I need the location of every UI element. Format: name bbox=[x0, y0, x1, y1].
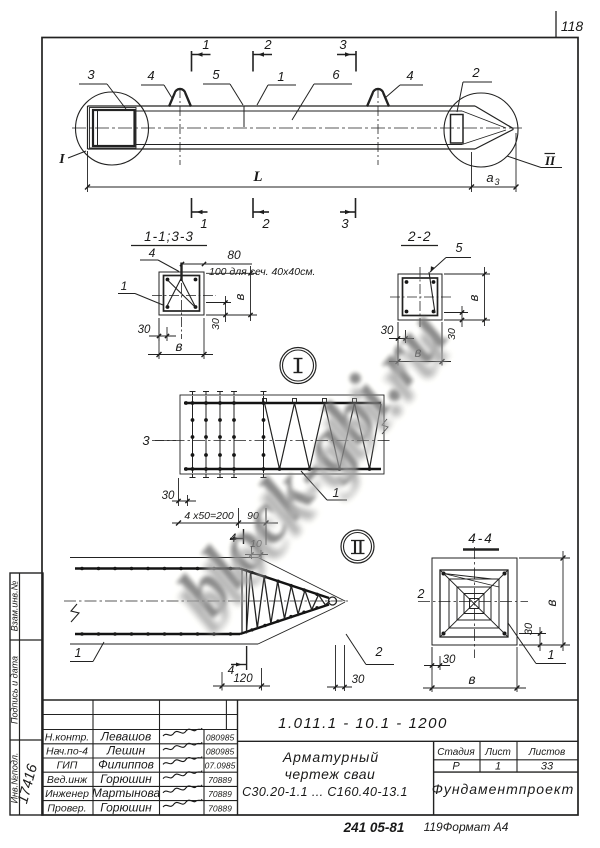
svg-text:1: 1 bbox=[548, 648, 555, 662]
svg-text:чертеж сваи: чертеж сваи bbox=[285, 766, 376, 782]
svg-text:5: 5 bbox=[212, 67, 220, 82]
svg-text:30: 30 bbox=[523, 622, 535, 635]
svg-text:4: 4 bbox=[149, 246, 156, 260]
svg-text:Левашов: Левашов bbox=[100, 729, 151, 743]
svg-text:3: 3 bbox=[341, 216, 349, 231]
svg-text:L: L bbox=[252, 169, 262, 185]
svg-text:1: 1 bbox=[75, 646, 82, 660]
svg-text:1: 1 bbox=[202, 37, 209, 52]
svg-text:2: 2 bbox=[417, 587, 425, 601]
svg-text:1.011.1 - 10.1 - 1200: 1.011.1 - 10.1 - 1200 bbox=[278, 715, 448, 732]
svg-text:2: 2 bbox=[261, 216, 270, 231]
svg-text:Р: Р bbox=[452, 761, 460, 773]
svg-text:в: в bbox=[544, 599, 559, 606]
svg-text:в: в bbox=[468, 672, 475, 687]
svg-text:2: 2 bbox=[375, 645, 383, 659]
svg-text:2-2: 2-2 bbox=[407, 229, 432, 244]
svg-text:Фундаментпроект: Фундаментпроект bbox=[432, 781, 575, 797]
svg-text:1: 1 bbox=[121, 279, 128, 293]
svg-text:080985: 080985 bbox=[206, 747, 235, 757]
svg-text:30: 30 bbox=[138, 324, 151, 336]
svg-text:3: 3 bbox=[339, 37, 347, 52]
svg-text:30: 30 bbox=[352, 674, 365, 686]
svg-text:080985: 080985 bbox=[206, 732, 235, 742]
svg-text:5: 5 bbox=[456, 241, 463, 255]
svg-text:07.0985: 07.0985 bbox=[205, 761, 236, 771]
svg-text:4-4: 4-4 bbox=[468, 531, 494, 546]
svg-text:С30.20-1.1 ... С160.40-13.1: С30.20-1.1 ... С160.40-13.1 bbox=[242, 785, 408, 799]
svg-text:1-1;3-3: 1-1;3-3 bbox=[144, 229, 194, 244]
svg-text:в: в bbox=[232, 293, 247, 300]
svg-text:118: 118 bbox=[561, 18, 584, 34]
svg-text:120: 120 bbox=[233, 673, 253, 685]
svg-text:Инженер: Инженер bbox=[45, 788, 89, 800]
svg-text:119Формат А4: 119Формат А4 bbox=[424, 820, 509, 834]
svg-text:100 для сеч. 40х40см.: 100 для сеч. 40х40см. bbox=[209, 266, 315, 278]
svg-text:1: 1 bbox=[495, 761, 501, 773]
svg-text:33: 33 bbox=[541, 761, 554, 773]
svg-text:I: I bbox=[58, 152, 65, 167]
svg-text:Подпись и дата: Подпись и дата bbox=[10, 656, 20, 724]
svg-text:30: 30 bbox=[443, 654, 456, 666]
svg-text:II: II bbox=[544, 153, 556, 168]
svg-text:a: a bbox=[486, 170, 493, 185]
svg-text:Провер.: Провер. bbox=[47, 802, 86, 814]
svg-text:241 05-81: 241 05-81 bbox=[343, 820, 405, 835]
svg-text:3: 3 bbox=[494, 177, 499, 187]
svg-text:30: 30 bbox=[210, 318, 222, 330]
svg-text:1: 1 bbox=[277, 69, 284, 84]
svg-text:ГИП: ГИП bbox=[57, 760, 78, 772]
svg-text:6: 6 bbox=[332, 67, 340, 82]
svg-text:1: 1 bbox=[200, 216, 207, 231]
svg-text:4: 4 bbox=[406, 68, 413, 83]
svg-text:Горюшин: Горюшин bbox=[100, 772, 152, 786]
svg-text:Лешин: Лешин bbox=[106, 744, 146, 758]
svg-text:4: 4 bbox=[147, 68, 154, 83]
svg-text:3: 3 bbox=[142, 433, 150, 448]
svg-text:2: 2 bbox=[471, 65, 480, 80]
svg-text:Арматурный: Арматурный bbox=[282, 749, 379, 765]
svg-text:80: 80 bbox=[227, 248, 241, 262]
svg-text:Взам.инв.№: Взам.инв.№ bbox=[10, 580, 20, 631]
svg-text:в: в bbox=[175, 339, 182, 354]
svg-text:Мартынова: Мартынова bbox=[92, 786, 161, 800]
svg-text:Филиппов: Филиппов bbox=[98, 758, 154, 772]
svg-text:Лист: Лист bbox=[484, 747, 511, 758]
svg-text:30: 30 bbox=[162, 490, 175, 502]
svg-text:Листов: Листов bbox=[528, 747, 565, 758]
svg-text:3: 3 bbox=[87, 67, 95, 82]
svg-text:2: 2 bbox=[263, 37, 272, 52]
svg-text:70889: 70889 bbox=[208, 775, 232, 785]
svg-text:70889: 70889 bbox=[208, 803, 232, 813]
svg-text:Стадия: Стадия bbox=[437, 747, 475, 758]
svg-text:в: в bbox=[466, 294, 481, 301]
svg-text:70889: 70889 bbox=[208, 789, 232, 799]
svg-text:Нач.по-4: Нач.по-4 bbox=[46, 746, 88, 758]
svg-text:Н.контр.: Н.контр. bbox=[45, 731, 89, 743]
svg-text:Вед.инж: Вед.инж bbox=[47, 774, 88, 786]
svg-text:Горюшин: Горюшин bbox=[100, 800, 152, 814]
